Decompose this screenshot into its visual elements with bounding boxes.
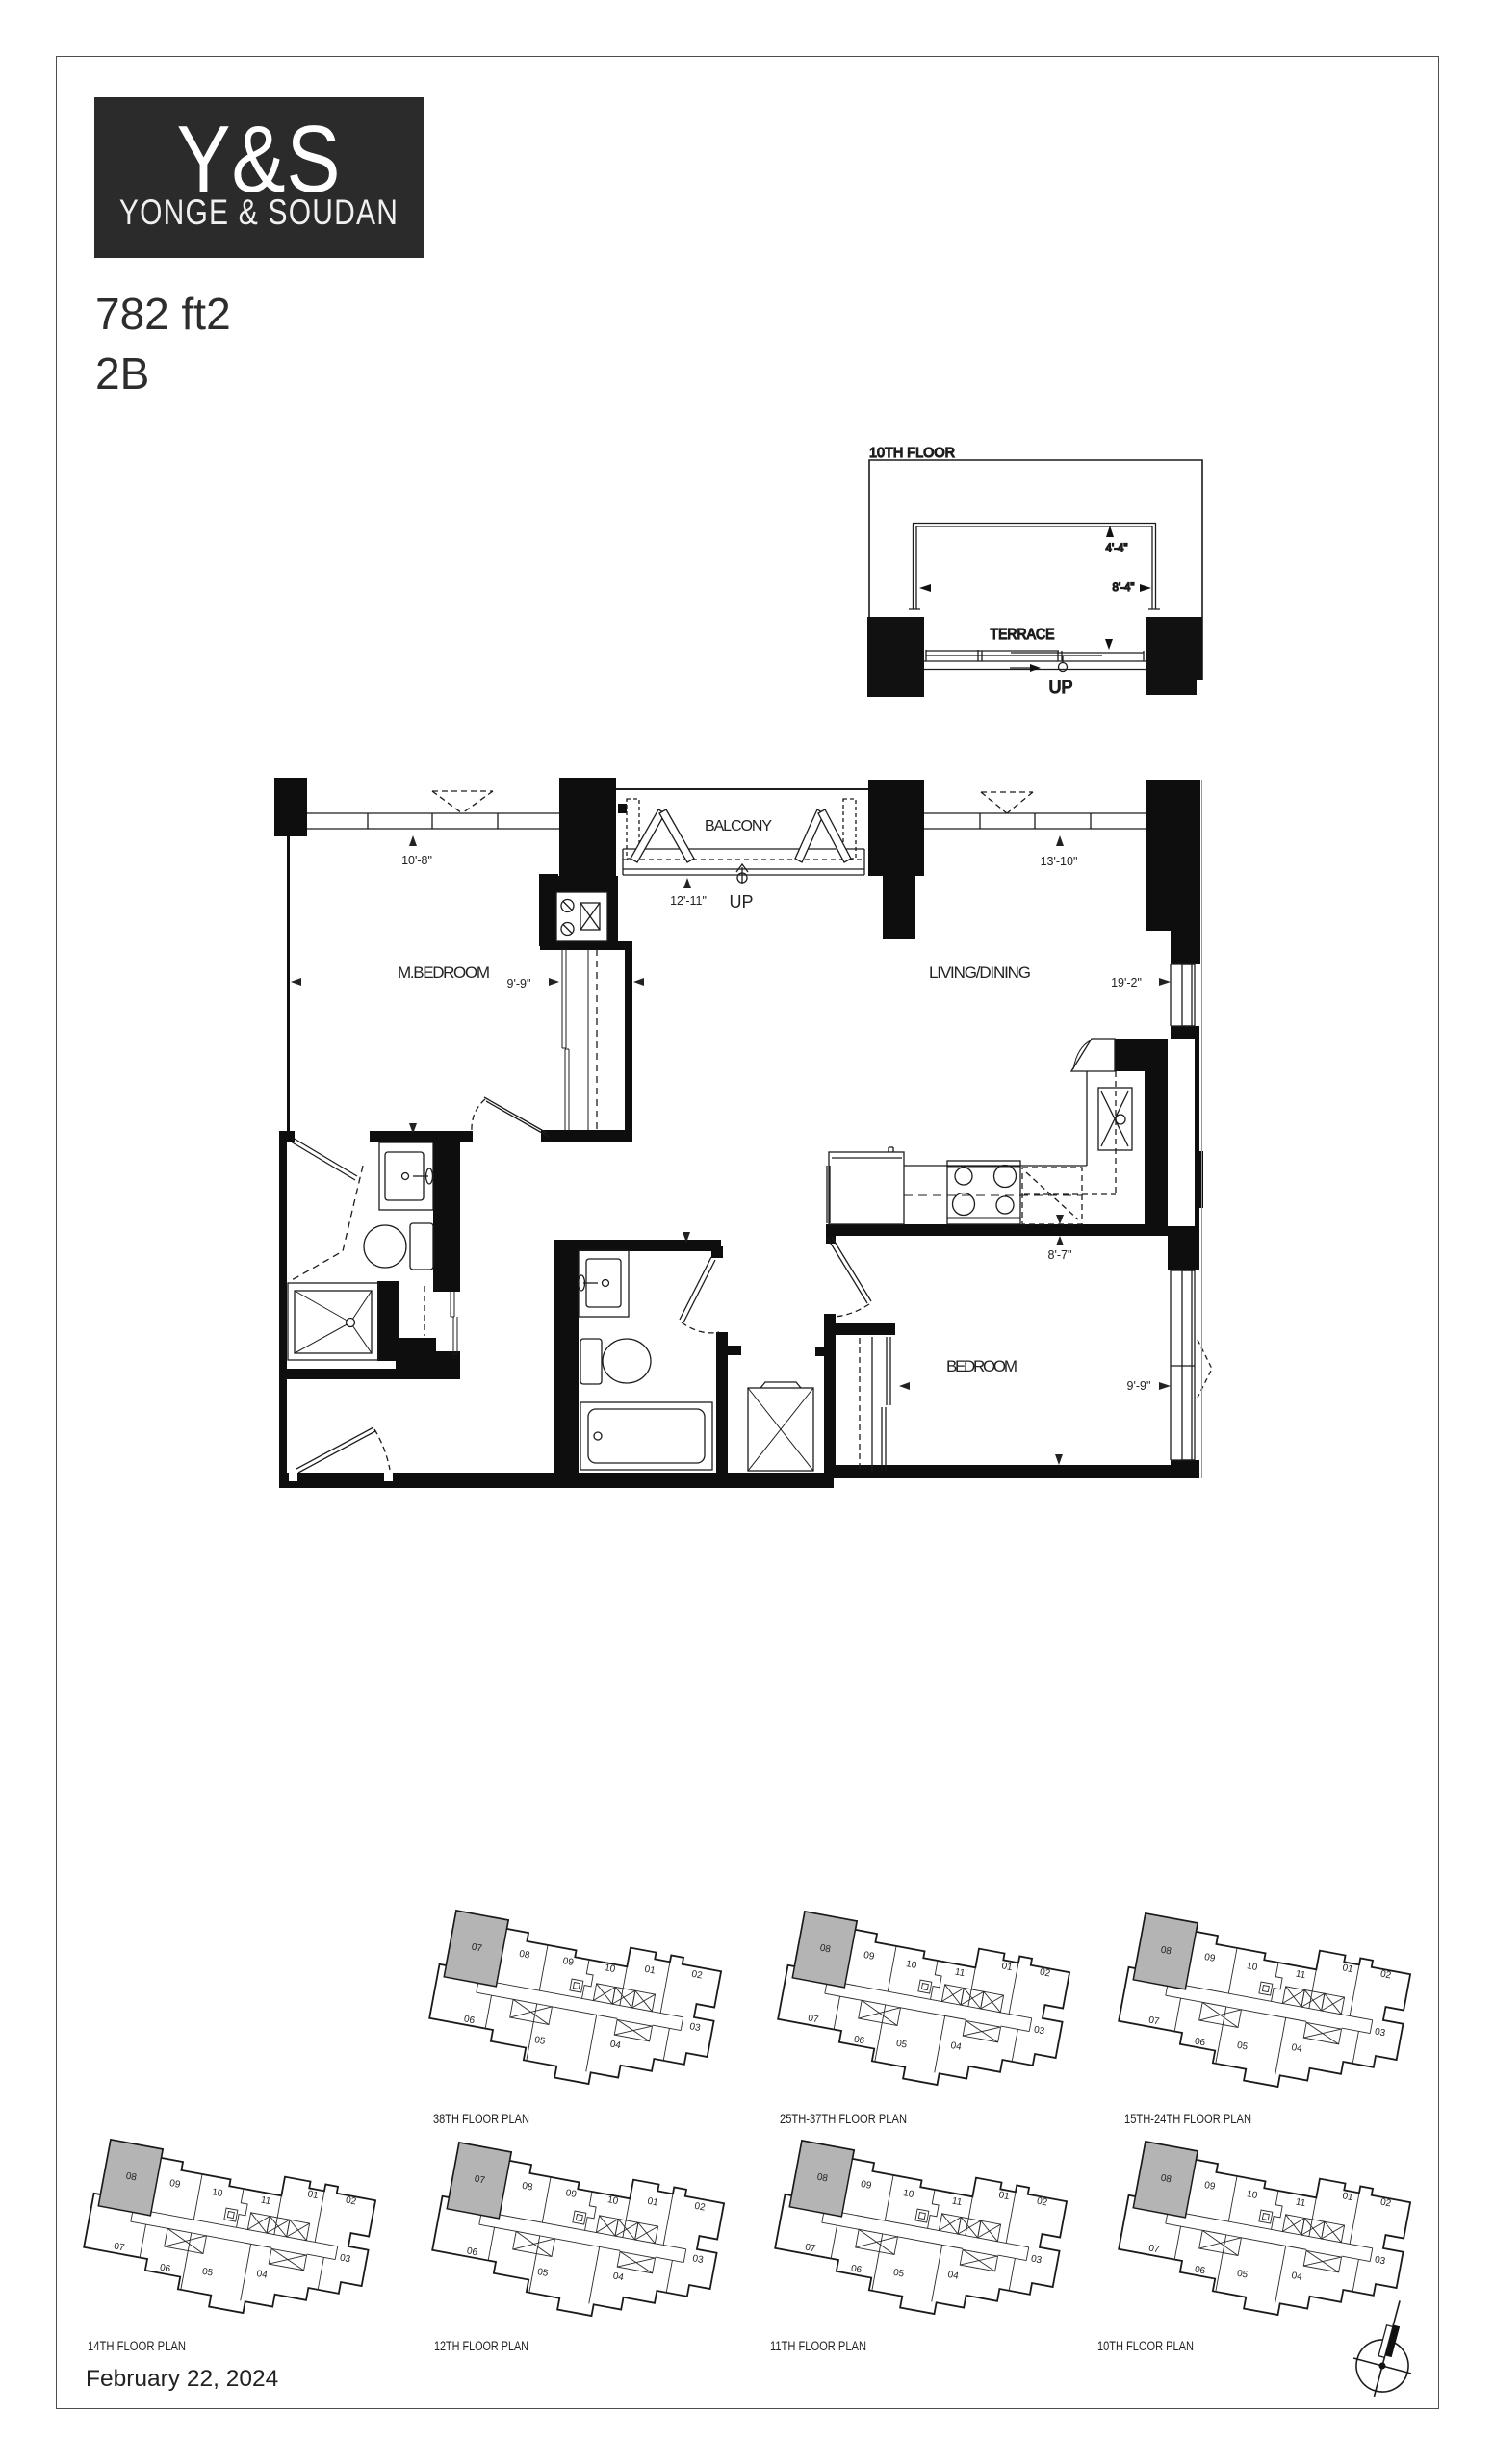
svg-text:38TH FLOOR PLAN: 38TH FLOOR PLAN <box>433 2112 529 2126</box>
svg-text:TERRACE: TERRACE <box>991 627 1055 643</box>
svg-text:BEDROOM: BEDROOM <box>946 1357 1017 1375</box>
svg-text:4'-4": 4'-4" <box>1106 543 1128 554</box>
svg-text:11TH FLOOR PLAN: 11TH FLOOR PLAN <box>770 2339 866 2353</box>
svg-text:UP: UP <box>1048 678 1072 697</box>
svg-text:8'-7": 8'-7" <box>1048 1248 1072 1262</box>
svg-text:BALCONY: BALCONY <box>705 818 772 834</box>
svg-text:15TH-24TH FLOOR PLAN: 15TH-24TH FLOOR PLAN <box>1124 2112 1251 2126</box>
svg-text:14TH FLOOR PLAN: 14TH FLOOR PLAN <box>88 2339 186 2353</box>
svg-text:10TH FLOOR: 10TH FLOOR <box>869 445 955 461</box>
svg-text:25TH-37TH FLOOR PLAN: 25TH-37TH FLOOR PLAN <box>780 2112 907 2126</box>
svg-text:13'-10": 13'-10" <box>1041 855 1078 868</box>
svg-text:9'-9": 9'-9" <box>507 977 531 990</box>
svg-text:12TH FLOOR PLAN: 12TH FLOOR PLAN <box>434 2339 528 2353</box>
svg-text:12'-11": 12'-11" <box>670 894 707 908</box>
svg-text:M.BEDROOM: M.BEDROOM <box>398 963 490 982</box>
svg-text:9'-9": 9'-9" <box>1127 1379 1151 1393</box>
svg-text:UP: UP <box>729 892 753 911</box>
svg-text:LIVING/DINING: LIVING/DINING <box>929 963 1031 982</box>
svg-text:19'-2": 19'-2" <box>1111 976 1142 989</box>
svg-text:10TH FLOOR PLAN: 10TH FLOOR PLAN <box>1097 2339 1194 2353</box>
svg-text:8'-4": 8'-4" <box>1113 582 1135 594</box>
svg-text:10'-8": 10'-8" <box>401 854 432 867</box>
